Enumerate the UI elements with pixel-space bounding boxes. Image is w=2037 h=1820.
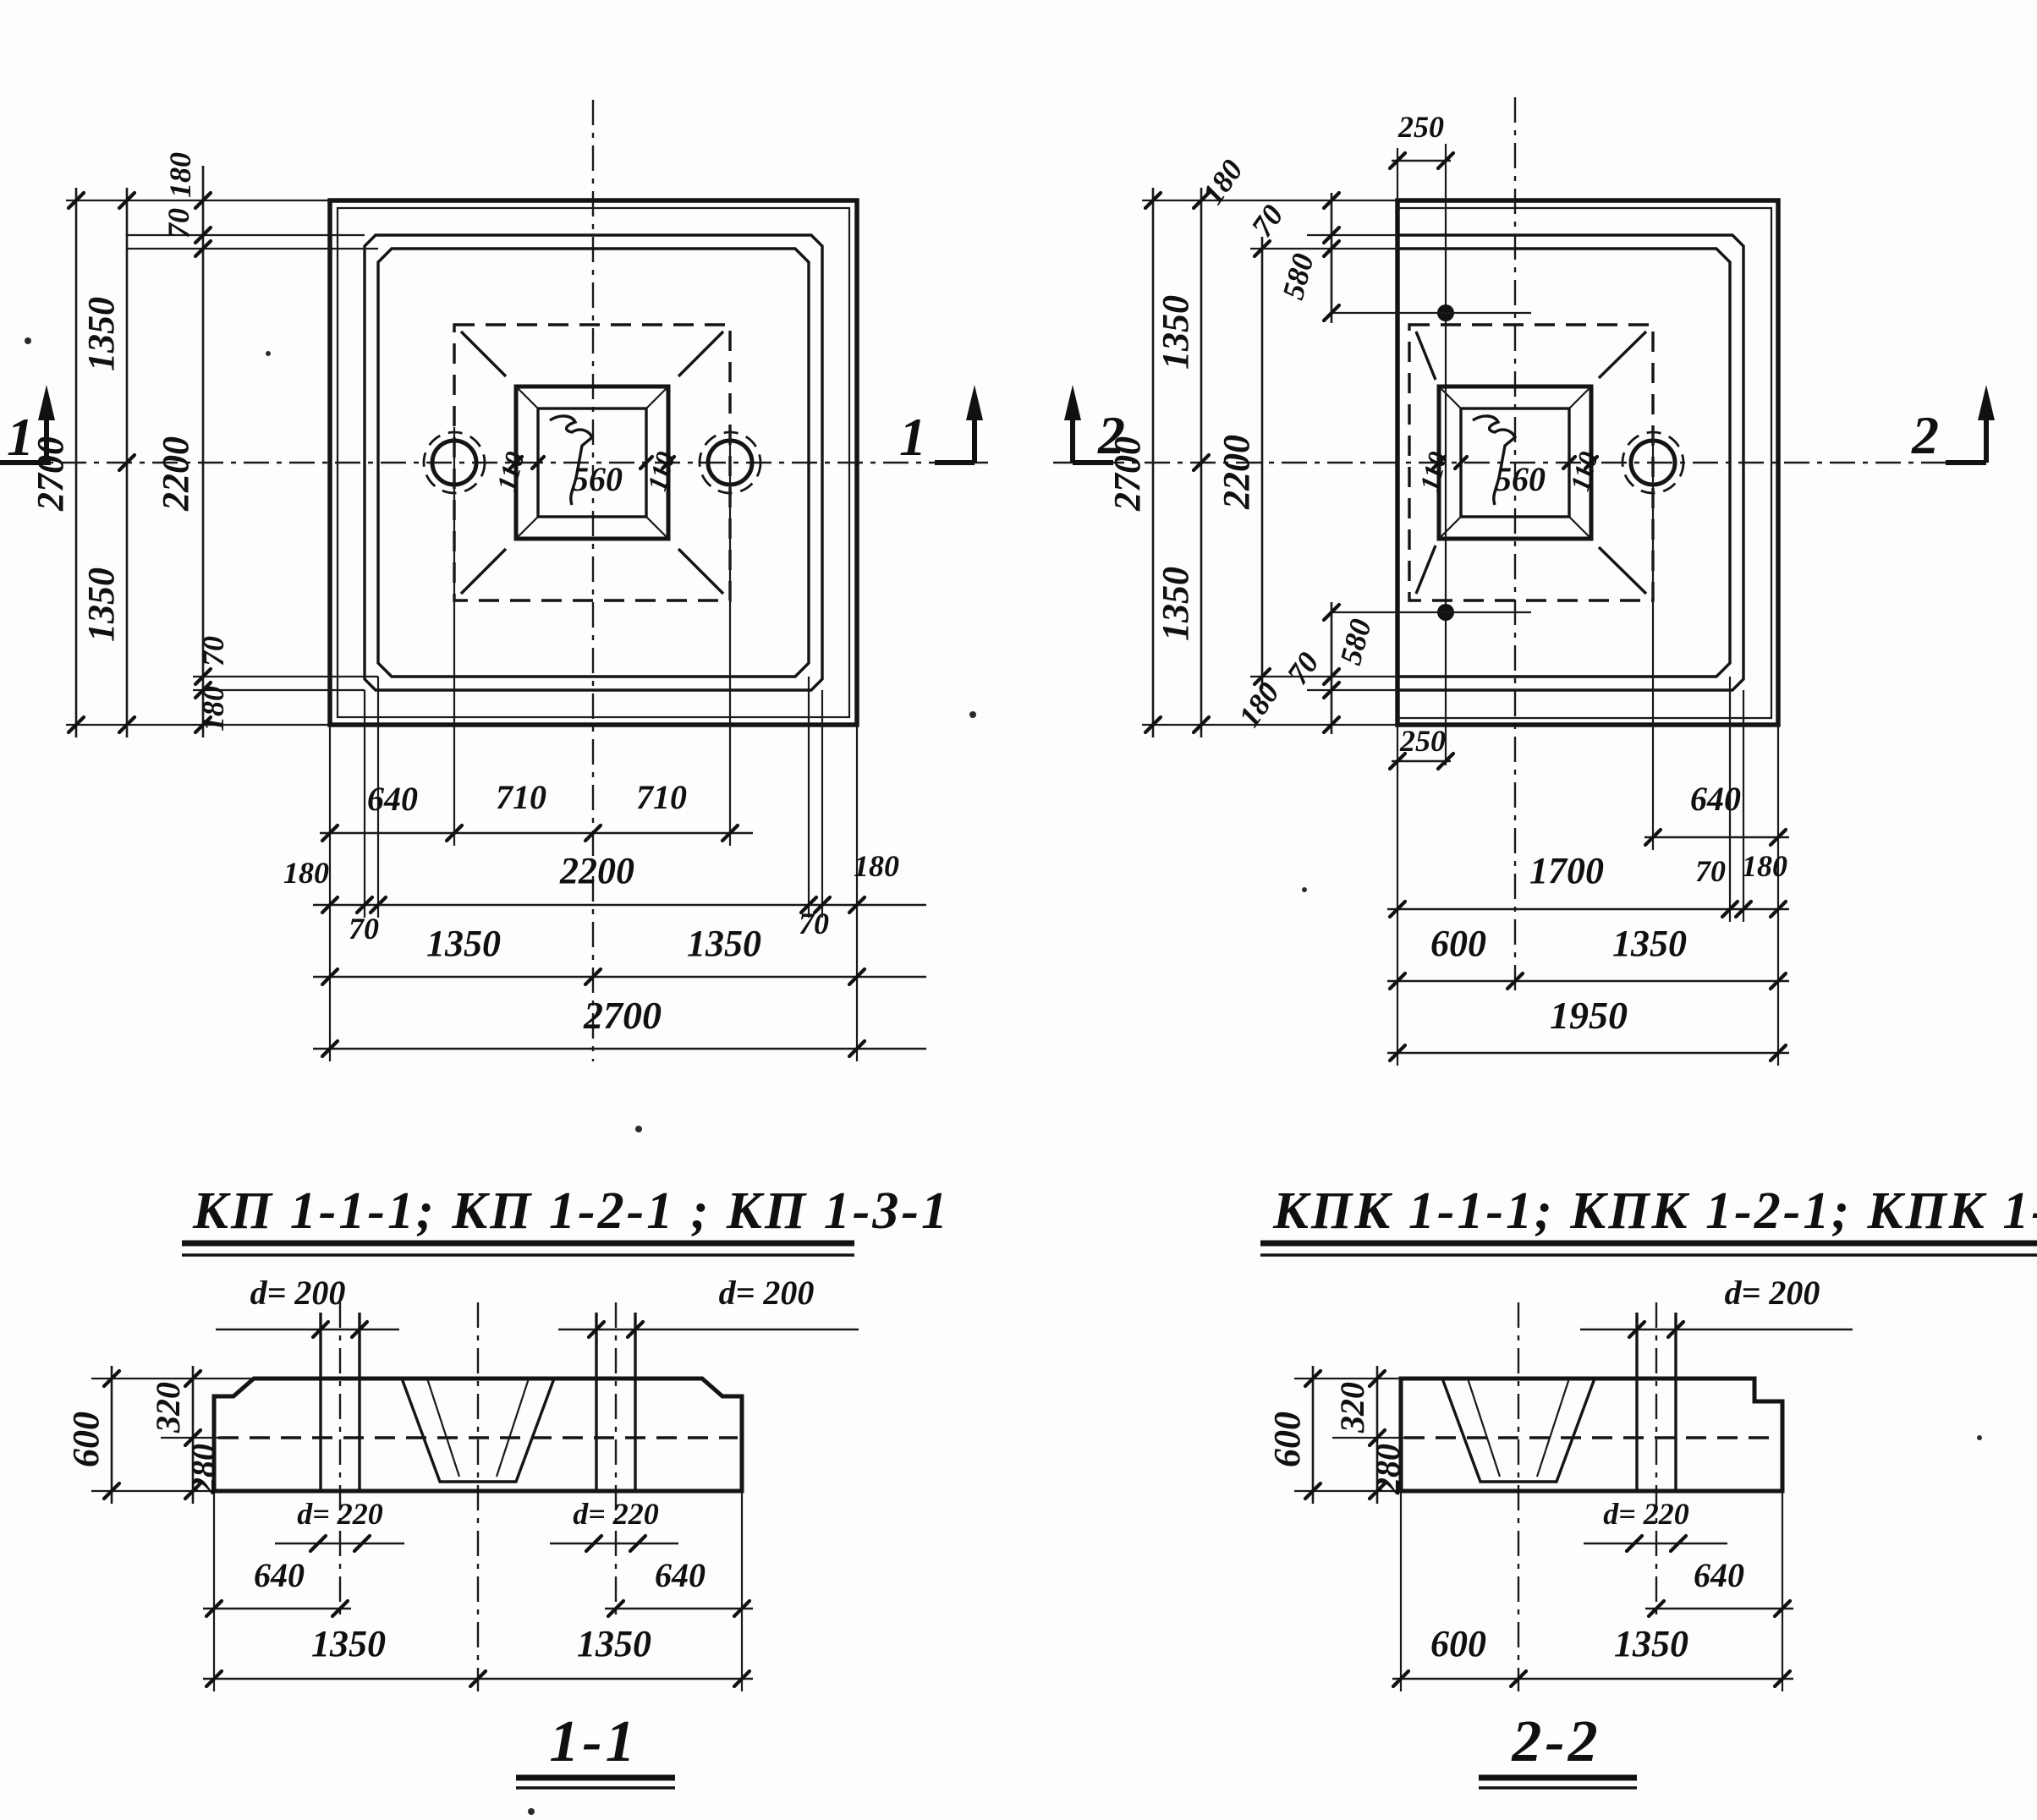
dim-hole-edge: 640 [367, 780, 418, 818]
section-marker-1-left: 1 [0, 385, 55, 467]
dim-pipe-d-left: d= 200 [250, 1274, 346, 1312]
section-arrow-icon [1064, 385, 1081, 420]
scan-specks [25, 337, 1982, 1815]
foundation-drawing: 2700 1350 1350 180 70 2200 70 180 110 56… [0, 0, 2037, 1820]
dim-opening: 560 [1495, 460, 1546, 498]
dim-half-left: 1350 [426, 923, 501, 964]
dim-hole-to-center: 710 [496, 778, 546, 816]
dim-half-right: 1350 [577, 1623, 651, 1664]
dim-edge-top: 180 [163, 152, 197, 198]
section-arrow-icon [38, 385, 55, 420]
plan-left-title: КП 1-1-1; КП 1-2-1 ; КП 1-3-1 [192, 1182, 950, 1240]
section1-dimension-lines [112, 1329, 859, 1679]
dim-inner-v: 2200 [1216, 435, 1257, 510]
section-marker-2-left: 2 [1064, 385, 1125, 465]
dim-height: 600 [1266, 1412, 1308, 1467]
dim-hole-d-left: d= 220 [297, 1497, 383, 1531]
dim-pin-offset-bottom: 250 [1399, 724, 1446, 758]
dim-inner-h: 1700 [1529, 850, 1604, 891]
dim-inner-v: 2200 [155, 436, 196, 512]
plan-right-title: КПК 1-1-1; КПК 1-2-1; КПК 1-3-1 [1272, 1182, 2037, 1240]
section2-profile [1401, 1379, 1782, 1491]
dim-inner-h: 2200 [559, 850, 634, 891]
dim-hole-edge-right: 640 [655, 1556, 706, 1594]
dim-edge-diag-top: 180 [1195, 154, 1249, 211]
dim-cut-offset: 600 [1430, 1623, 1486, 1664]
section-marker-2-right: 2 [1911, 385, 1995, 465]
section-2-2: d= 200 600 320 280 d= 220 640 600 1350 2… [1266, 1274, 1853, 1788]
dim-hole-edge: 640 [1694, 1556, 1744, 1594]
dim-height-top: 320 [149, 1382, 187, 1434]
dim-pin-depth-top: 580 [1276, 250, 1320, 304]
section-arrow-icon [1978, 385, 1995, 420]
dim-height-top: 320 [1333, 1382, 1371, 1434]
dim-hole-d-right: d= 220 [573, 1497, 659, 1531]
dim-height-bottom: 280 [1369, 1444, 1407, 1495]
section-1-1: d= 200 d= 200 600 320 280 d= 220 d= 220 … [65, 1274, 859, 1788]
dim-edge-right: 180 [1742, 849, 1787, 883]
dim-step-right: 70 [1695, 854, 1726, 888]
plan-left: 2700 1350 1350 180 70 2200 70 180 110 56… [0, 100, 988, 1255]
section-marker-label: 1 [899, 407, 926, 467]
dim-step-diag-bottom: 70 [1280, 646, 1325, 690]
plan-right: 250 180 70 580 2700 1350 1350 2200 580 7… [1053, 97, 2037, 1255]
dim-overall-width: 2700 [583, 994, 662, 1037]
dim-overall-width: 1950 [1550, 994, 1628, 1037]
dim-wall-left: 110 [491, 448, 530, 494]
section-marker-label: 2 [1911, 405, 1939, 465]
dim-half-right: 1350 [687, 923, 761, 964]
dim-step-left: 70 [349, 912, 379, 946]
section-marker-label: 1 [7, 407, 34, 467]
dim-step-top: 70 [162, 208, 195, 238]
dim-edge-left: 180 [283, 856, 329, 890]
dim-step-diag-top: 70 [1244, 199, 1289, 243]
dim-opening: 560 [572, 460, 623, 498]
dim-half-right: 1350 [1614, 1623, 1688, 1664]
dim-center-to-hole: 710 [636, 778, 687, 816]
dim-pipe-d-right: d= 200 [719, 1274, 815, 1312]
dim-hole-edge-left: 640 [254, 1556, 305, 1594]
dim-half-top: 1350 [80, 297, 122, 371]
section-marker-1-right: 1 [899, 385, 983, 467]
section2-dimension-lines [1313, 1329, 1853, 1679]
dim-half-top: 1350 [1155, 295, 1196, 370]
dim-wall-left: 110 [1414, 448, 1453, 494]
dim-pin-offset-top: 250 [1397, 110, 1444, 144]
dim-pin-depth-bottom: 580 [1333, 616, 1378, 669]
plan-right-dimension-lines [1153, 161, 1789, 1053]
dim-height-bottom: 280 [184, 1444, 222, 1495]
dim-cut-offset: 600 [1430, 923, 1486, 964]
dim-height: 600 [65, 1412, 107, 1467]
dim-hole-d: d= 220 [1603, 1497, 1689, 1531]
dim-step-bottom: 70 [196, 636, 230, 666]
section-arrow-icon [966, 385, 983, 420]
dim-edge-bottom: 180 [196, 686, 230, 732]
section-marker-label: 2 [1097, 405, 1125, 465]
dim-half-bottom: 1350 [1155, 567, 1196, 641]
section1-title: 1-1 [549, 1709, 638, 1774]
dim-overall-height: 2700 [30, 436, 71, 512]
dim-half-bottom: 1350 [80, 567, 122, 642]
dim-hole-edge: 640 [1690, 780, 1741, 818]
dim-step-right: 70 [799, 907, 829, 940]
dim-half-right: 1350 [1612, 923, 1687, 964]
dim-pipe-d: d= 200 [1725, 1274, 1820, 1312]
dim-edge-right: 180 [854, 849, 899, 883]
dim-half-left: 1350 [311, 1623, 386, 1664]
section2-title: 2-2 [1511, 1709, 1600, 1774]
